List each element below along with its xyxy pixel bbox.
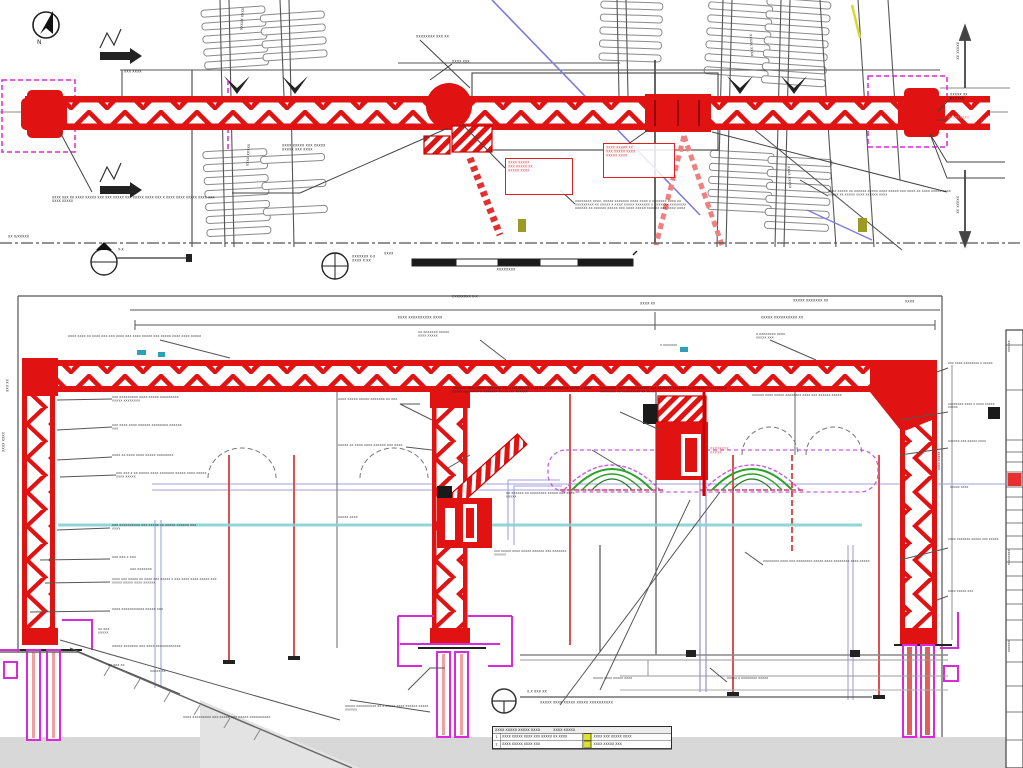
svg-text:N: N bbox=[37, 39, 42, 46]
right-margin-black-box bbox=[988, 407, 1000, 419]
end-carriage-right bbox=[898, 88, 945, 137]
winch-unit-plan bbox=[645, 94, 711, 132]
left-leg-truss bbox=[22, 358, 58, 645]
title-strip-red-cell bbox=[1008, 473, 1022, 486]
section-marker-2 bbox=[322, 253, 348, 279]
drawing-linework: N bbox=[0, 0, 1023, 768]
title-block-strip bbox=[1006, 330, 1023, 768]
end-carriage-left bbox=[21, 90, 67, 138]
drawing-sheet: N bbox=[0, 0, 1023, 768]
ground-grey-band bbox=[0, 737, 1023, 768]
top-chord-lattice bbox=[30, 366, 935, 386]
